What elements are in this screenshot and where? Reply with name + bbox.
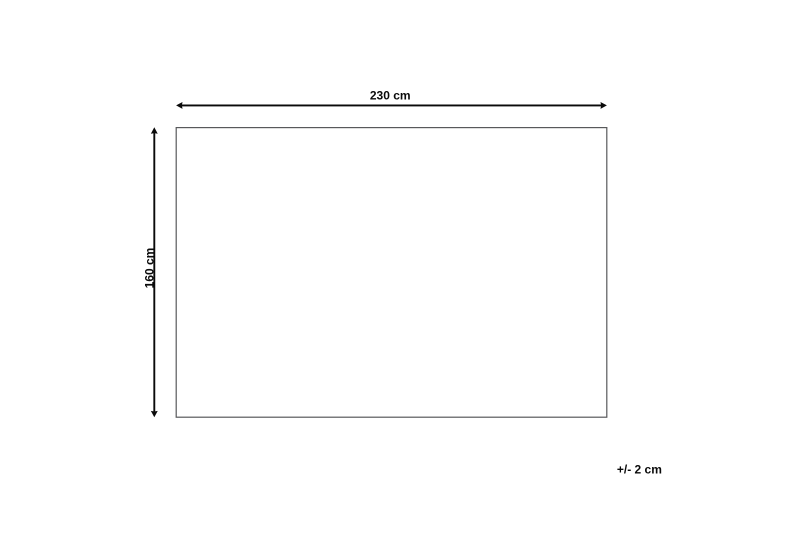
svg-text:230 cm: 230 cm — [370, 89, 411, 103]
svg-text:+/- 2 cm: +/- 2 cm — [617, 463, 662, 477]
svg-text:160 cm: 160 cm — [142, 248, 156, 289]
